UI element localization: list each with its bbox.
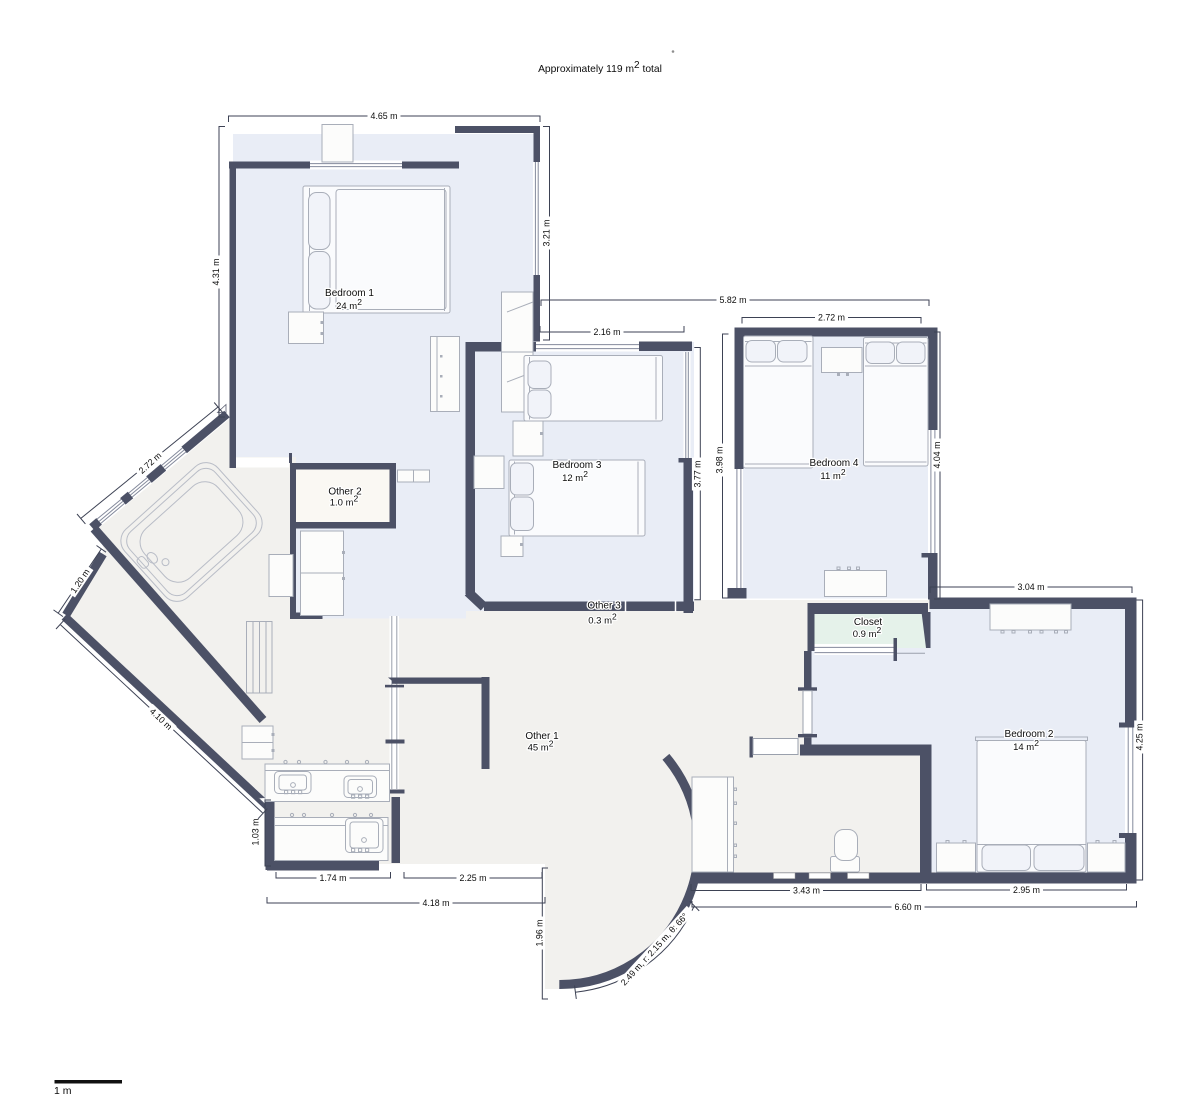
svg-text:2.16 m: 2.16 m	[594, 327, 621, 337]
svg-text:6.60 m: 6.60 m	[895, 902, 922, 912]
svg-text:2.25 m: 2.25 m	[460, 873, 487, 883]
svg-text:4.31 m: 4.31 m	[211, 259, 221, 286]
svg-text:3.98 m: 3.98 m	[715, 447, 725, 474]
svg-text:Other 1: Other 1	[525, 731, 559, 742]
svg-text:2.95 m: 2.95 m	[1013, 885, 1040, 895]
svg-text:4.18 m: 4.18 m	[423, 898, 450, 908]
svg-text:3.77 m: 3.77 m	[692, 461, 702, 488]
svg-text:1.74 m: 1.74 m	[320, 873, 347, 883]
svg-text:4.25 m: 4.25 m	[1135, 724, 1145, 751]
svg-text:Bedroom 4: Bedroom 4	[810, 458, 859, 469]
svg-text:Other 3: Other 3	[587, 601, 621, 612]
svg-text:2.72 m: 2.72 m	[818, 313, 845, 323]
svg-text:4.65 m: 4.65 m	[371, 111, 398, 121]
svg-text:5.82 m: 5.82 m	[720, 295, 747, 305]
svg-text:1.03 m: 1.03 m	[251, 819, 261, 846]
svg-text:4.04 m: 4.04 m	[932, 442, 942, 469]
svg-text:Bedroom 1: Bedroom 1	[325, 288, 374, 299]
svg-text:3.04 m: 3.04 m	[1018, 582, 1045, 592]
svg-text:3.43 m: 3.43 m	[793, 886, 820, 896]
svg-text:3.21 m: 3.21 m	[542, 220, 552, 247]
svg-text:Bedroom 3: Bedroom 3	[553, 460, 602, 471]
svg-text:1.96 m: 1.96 m	[534, 920, 544, 947]
svg-text:Bedroom 2: Bedroom 2	[1005, 729, 1054, 740]
svg-text:1 m: 1 m	[54, 1085, 72, 1097]
